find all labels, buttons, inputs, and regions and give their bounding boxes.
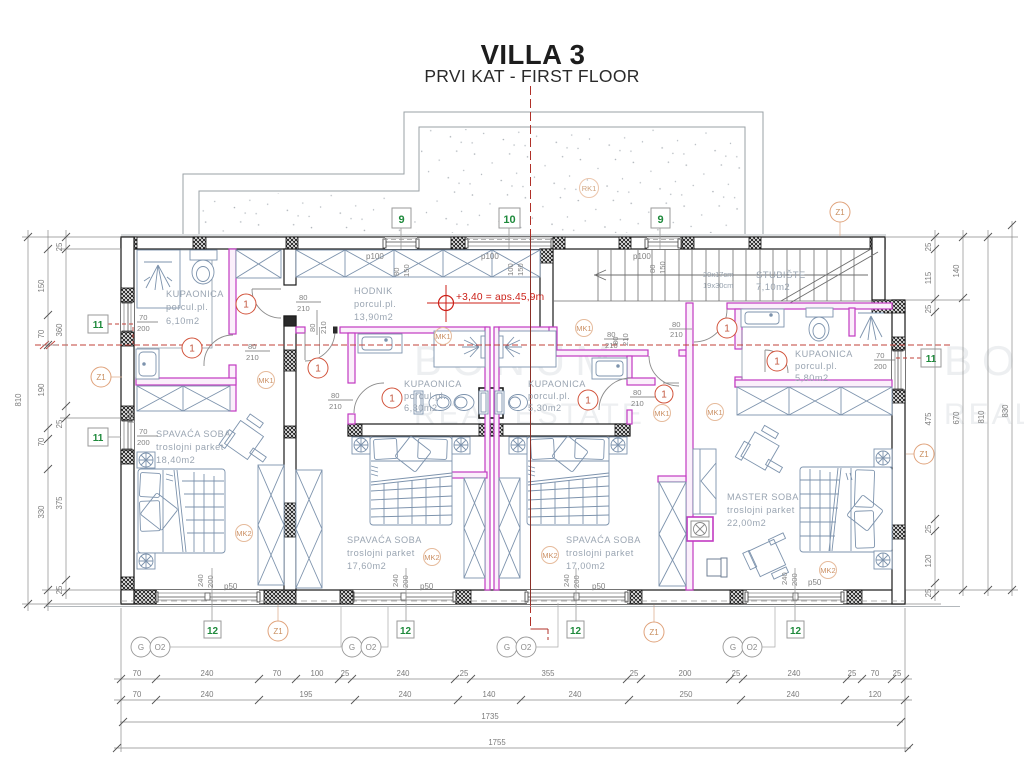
svg-text:210: 210: [621, 333, 630, 346]
svg-text:PRVI KAT - FIRST FLOOR: PRVI KAT - FIRST FLOOR: [424, 66, 639, 86]
svg-text:troslojni parket: troslojni parket: [566, 548, 634, 558]
svg-text:100: 100: [310, 669, 324, 678]
svg-text:210: 210: [297, 304, 310, 313]
svg-text:80: 80: [633, 388, 641, 397]
svg-text:22,00m2: 22,00m2: [727, 518, 766, 528]
svg-text:80: 80: [248, 342, 256, 351]
svg-text:200: 200: [572, 575, 581, 588]
svg-text:9: 9: [398, 214, 404, 226]
svg-text:240: 240: [391, 574, 400, 587]
svg-text:150: 150: [402, 264, 411, 277]
svg-text:1: 1: [315, 364, 321, 375]
svg-text:KUPAONICA: KUPAONICA: [528, 379, 586, 389]
svg-text:12: 12: [570, 626, 582, 637]
svg-text:25: 25: [55, 242, 64, 251]
svg-text:p50: p50: [224, 582, 238, 591]
svg-text:355: 355: [541, 669, 555, 678]
svg-text:475: 475: [924, 412, 933, 426]
svg-text:porcul.pl.: porcul.pl.: [404, 391, 446, 401]
svg-text:1: 1: [585, 396, 591, 407]
svg-text:240: 240: [200, 669, 214, 678]
svg-text:25: 25: [924, 588, 933, 597]
svg-text:6,30m2: 6,30m2: [404, 403, 438, 413]
svg-text:porcul.pl.: porcul.pl.: [354, 299, 396, 309]
svg-text:70: 70: [876, 351, 884, 360]
svg-text:1755: 1755: [488, 738, 506, 747]
svg-text:MK2: MK2: [236, 529, 251, 538]
svg-text:12: 12: [400, 626, 412, 637]
svg-text:HODNIK: HODNIK: [354, 286, 393, 296]
svg-text:70: 70: [37, 329, 46, 338]
svg-text:80: 80: [299, 293, 307, 302]
svg-text:Z1: Z1: [835, 208, 845, 217]
svg-text:Z1: Z1: [649, 628, 659, 637]
svg-text:SPAVAĆA SOBA: SPAVAĆA SOBA: [156, 429, 231, 439]
svg-text:1: 1: [389, 394, 395, 405]
svg-text:80: 80: [648, 265, 657, 273]
svg-text:80: 80: [611, 337, 620, 345]
svg-text:70: 70: [139, 313, 147, 322]
svg-text:150: 150: [37, 279, 46, 293]
svg-text:200: 200: [874, 362, 887, 371]
svg-text:240: 240: [780, 572, 789, 585]
svg-text:p100: p100: [633, 252, 651, 261]
svg-text:670: 670: [952, 411, 961, 425]
svg-text:Z1: Z1: [273, 627, 283, 636]
svg-text:p50: p50: [808, 578, 822, 587]
svg-text:MK2: MK2: [820, 566, 835, 575]
svg-text:Z1: Z1: [919, 450, 929, 459]
svg-text:1735: 1735: [481, 712, 499, 721]
svg-text:porcul.pl.: porcul.pl.: [166, 302, 208, 312]
svg-text:MASTER SOBA: MASTER SOBA: [727, 492, 799, 502]
svg-text:1: 1: [189, 344, 195, 355]
svg-text:200: 200: [137, 324, 150, 333]
svg-text:6,10m2: 6,10m2: [166, 316, 200, 326]
svg-text:240: 240: [398, 690, 412, 699]
svg-text:210: 210: [670, 330, 683, 339]
svg-text:240: 240: [562, 574, 571, 587]
svg-text:p100: p100: [366, 252, 384, 261]
svg-text:210: 210: [329, 402, 342, 411]
svg-text:MK1: MK1: [654, 409, 669, 418]
svg-text:115: 115: [924, 271, 933, 284]
svg-text:25: 25: [341, 669, 350, 678]
svg-text:STUBIŠTE: STUBIŠTE: [756, 270, 806, 281]
svg-text:810: 810: [977, 410, 986, 424]
svg-text:12: 12: [790, 626, 802, 637]
svg-text:240: 240: [396, 669, 410, 678]
svg-text:120: 120: [924, 554, 933, 568]
svg-text:MK1: MK1: [435, 332, 450, 341]
svg-text:25: 25: [924, 242, 933, 251]
svg-text:210: 210: [631, 399, 644, 408]
svg-text:80: 80: [392, 268, 401, 276]
svg-text:KUPAONICA: KUPAONICA: [404, 379, 462, 389]
svg-text:210: 210: [246, 353, 259, 362]
svg-text:KUPAONICA: KUPAONICA: [795, 349, 853, 359]
svg-text:25: 25: [924, 304, 933, 313]
svg-text:25: 25: [460, 669, 469, 678]
svg-text:375: 375: [55, 496, 64, 510]
svg-text:O2: O2: [747, 643, 758, 652]
svg-text:25: 25: [732, 669, 741, 678]
svg-text:G: G: [730, 643, 736, 652]
svg-text:70: 70: [37, 437, 46, 446]
svg-text:240: 240: [787, 669, 801, 678]
svg-text:+3,40 = aps.45,9m: +3,40 = aps.45,9m: [456, 292, 544, 303]
svg-text:17,60m2: 17,60m2: [347, 561, 386, 571]
svg-text:G: G: [504, 643, 510, 652]
svg-text:360: 360: [55, 323, 64, 337]
svg-text:830: 830: [1001, 404, 1010, 418]
svg-text:Z1: Z1: [96, 373, 106, 382]
svg-text:80: 80: [672, 320, 680, 329]
svg-text:200: 200: [137, 438, 150, 447]
svg-text:240: 240: [786, 690, 800, 699]
svg-text:troslojni parket: troslojni parket: [156, 442, 224, 452]
svg-text:70: 70: [133, 690, 142, 699]
svg-text:19x30cm: 19x30cm: [703, 281, 733, 290]
svg-text:140: 140: [952, 264, 961, 278]
svg-text:25: 25: [55, 585, 64, 594]
svg-text:SPAVAĆA SOBA: SPAVAĆA SOBA: [347, 535, 422, 545]
svg-text:p100: p100: [481, 252, 499, 261]
svg-text:RK1: RK1: [582, 184, 597, 193]
svg-text:25: 25: [924, 524, 933, 533]
svg-text:1: 1: [724, 324, 730, 335]
svg-text:5,30m2: 5,30m2: [528, 403, 562, 413]
svg-text:25: 25: [630, 669, 639, 678]
svg-text:240: 240: [200, 690, 214, 699]
svg-text:MK2: MK2: [424, 553, 439, 562]
svg-text:MK2: MK2: [542, 551, 557, 560]
svg-text:195: 195: [299, 690, 313, 699]
svg-text:O2: O2: [366, 643, 377, 652]
svg-text:200: 200: [790, 573, 799, 586]
svg-text:120: 120: [868, 690, 882, 699]
svg-text:18,40m2: 18,40m2: [156, 455, 195, 465]
svg-text:porcul.pl.: porcul.pl.: [528, 391, 570, 401]
svg-text:9: 9: [657, 214, 663, 226]
svg-text:p50: p50: [592, 582, 606, 591]
svg-text:O2: O2: [521, 643, 532, 652]
svg-text:150: 150: [516, 263, 525, 276]
svg-text:O2: O2: [155, 643, 166, 652]
svg-text:25: 25: [893, 669, 902, 678]
svg-text:13,90m2: 13,90m2: [354, 312, 393, 322]
svg-text:70: 70: [871, 669, 880, 678]
svg-text:troslojni parket: troslojni parket: [727, 505, 795, 515]
svg-text:25: 25: [55, 419, 64, 428]
svg-text:70: 70: [273, 669, 282, 678]
svg-text:1: 1: [661, 390, 667, 401]
svg-text:80: 80: [308, 324, 317, 332]
svg-text:12: 12: [207, 626, 219, 637]
svg-text:KUPAONICA: KUPAONICA: [166, 289, 224, 299]
svg-text:200: 200: [401, 575, 410, 588]
svg-text:140: 140: [482, 690, 496, 699]
svg-text:MK1: MK1: [707, 408, 722, 417]
svg-text:150: 150: [658, 261, 667, 274]
svg-text:G: G: [138, 643, 144, 652]
svg-text:810: 810: [14, 393, 23, 407]
svg-text:1: 1: [774, 357, 780, 368]
svg-text:10: 10: [503, 214, 515, 226]
svg-text:p50: p50: [420, 582, 434, 591]
svg-text:200: 200: [206, 575, 215, 588]
svg-text:7,10m2: 7,10m2: [756, 282, 790, 293]
svg-text:200: 200: [678, 669, 692, 678]
svg-text:240: 240: [196, 574, 205, 587]
svg-text:70: 70: [133, 669, 142, 678]
svg-text:210: 210: [319, 321, 328, 334]
svg-text:G: G: [349, 643, 355, 652]
svg-text:17,00m2: 17,00m2: [566, 561, 605, 571]
svg-text:SPAVAĆA SOBA: SPAVAĆA SOBA: [566, 535, 641, 545]
svg-text:porcul.pl.: porcul.pl.: [795, 361, 837, 371]
svg-text:100: 100: [506, 263, 515, 276]
svg-text:80: 80: [331, 391, 339, 400]
svg-text:70: 70: [139, 427, 147, 436]
svg-text:330: 330: [37, 505, 46, 519]
svg-text:troslojni parket: troslojni parket: [347, 548, 415, 558]
svg-text:MK1: MK1: [576, 324, 591, 333]
svg-text:p50: p50: [126, 409, 135, 423]
svg-text:5,80m2: 5,80m2: [795, 373, 829, 383]
svg-text:1: 1: [243, 300, 249, 311]
svg-text:11: 11: [93, 320, 104, 331]
svg-text:11: 11: [93, 433, 104, 444]
svg-text:190: 190: [37, 383, 46, 397]
svg-text:MK1: MK1: [258, 376, 273, 385]
svg-text:250: 250: [679, 690, 693, 699]
svg-text:25: 25: [848, 669, 857, 678]
svg-text:20x17cm: 20x17cm: [703, 270, 733, 279]
svg-text:240: 240: [568, 690, 582, 699]
